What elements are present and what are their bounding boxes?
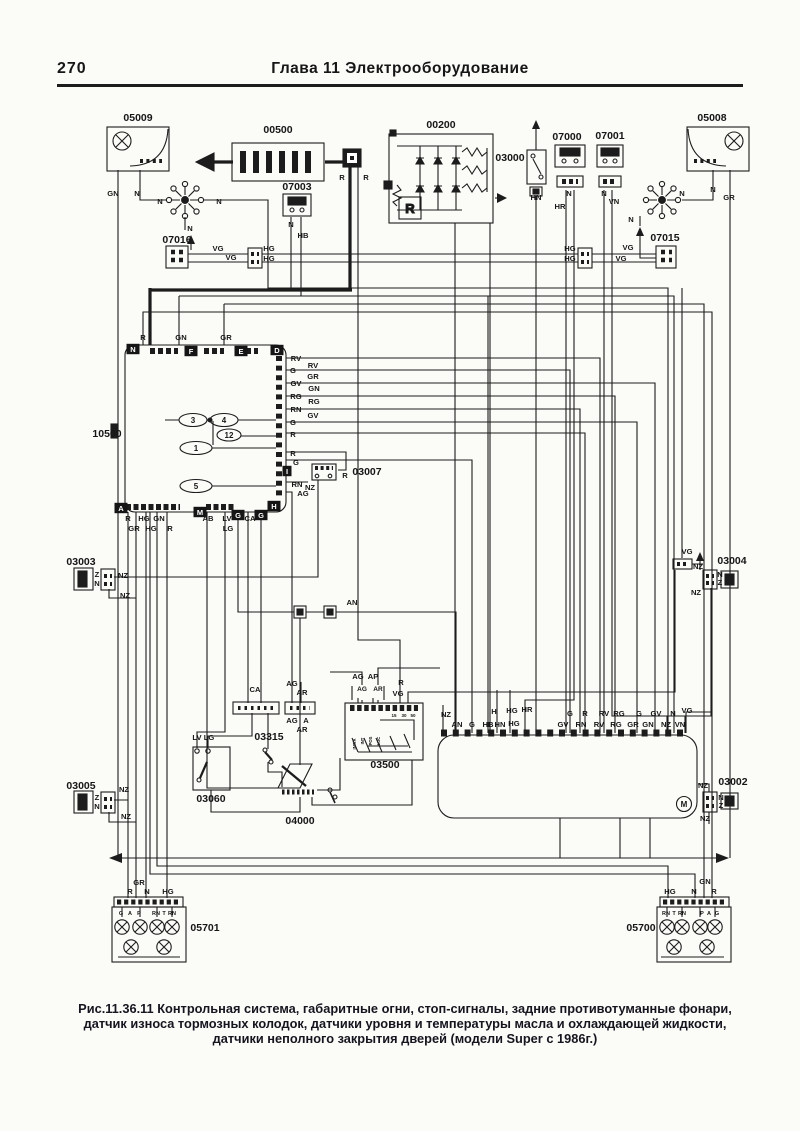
manual-page: 270 Глава 11 Электрооборудование [0, 0, 800, 1131]
wire-label: AG [286, 716, 297, 725]
fuse-box-00500 [232, 143, 324, 181]
switch-04000 [278, 764, 337, 803]
wire-label: N [670, 709, 675, 718]
wire-label: VG [226, 253, 237, 262]
wire-label: NZ [121, 812, 131, 821]
wire-label: LG [223, 524, 234, 533]
component-label: 07015 [650, 232, 679, 244]
wire-label: GR [307, 372, 319, 381]
connector-07003 [283, 194, 311, 216]
wire-label: NZ [661, 720, 671, 729]
wire-label: HG [162, 887, 173, 896]
wire-label: GV [651, 709, 663, 718]
relay-03007 [312, 464, 336, 480]
wire-label: GN [308, 384, 319, 393]
wire-label: NZ [700, 814, 710, 823]
wire-label: N [710, 185, 715, 194]
wire-label: N [628, 215, 633, 224]
switch-03060 [193, 747, 230, 790]
wire-label: 30 [401, 713, 407, 718]
feed-arrow-left [196, 153, 214, 171]
wire-label: RG [290, 392, 301, 401]
wire-label: GN [153, 514, 164, 523]
junction-node [343, 149, 361, 167]
component-label: 10500 [92, 428, 121, 440]
wire-label: GN [107, 189, 118, 198]
wire-label: NZ [693, 562, 703, 571]
wire-label: N [157, 197, 162, 206]
wire-label: HG [564, 254, 575, 263]
wire-label: R [290, 430, 296, 439]
wire-label: R [342, 471, 348, 480]
wire-label: GN [175, 333, 186, 342]
wire-label: R [167, 524, 173, 533]
component-label: 07001 [595, 130, 624, 142]
wire-label: AR [373, 686, 383, 693]
component-symbols [74, 127, 749, 962]
wire-label: N [134, 189, 139, 198]
switch-position-label: INT [360, 737, 365, 744]
wire-label: AN [452, 720, 463, 729]
wire-label: Z [95, 570, 100, 579]
gauge-number: 5 [194, 482, 199, 491]
switch-03500 [345, 703, 423, 760]
wire-label: HG [664, 887, 675, 896]
wire-label: GV [308, 411, 320, 420]
switch-position-label: LUC [376, 737, 381, 746]
wire-label: RG [613, 709, 624, 718]
wire-label: RN [292, 480, 303, 489]
wire-label: VG [393, 689, 404, 698]
wire-label: GN [642, 720, 653, 729]
wire-label: GR [128, 524, 140, 533]
wire-label: 15 [391, 713, 397, 718]
wire-label: HR [555, 202, 566, 211]
component-label: 05009 [123, 112, 152, 124]
wire-label: GV [558, 720, 570, 729]
switch-position-label: POS [368, 736, 373, 745]
wire-label: A [707, 911, 711, 917]
wire-label: HG [145, 524, 156, 533]
badge-letter: N [130, 345, 135, 354]
wire-label: LV [222, 514, 232, 523]
badge-letter: F [189, 347, 194, 356]
badge-letter: D [274, 346, 280, 355]
component-label: 03004 [717, 555, 746, 567]
wire-label: R [582, 709, 588, 718]
badge-letter: E [238, 347, 243, 356]
caption-line-2: датчик износа тормозных колодок, датчики… [55, 1017, 755, 1032]
wire-label: R [711, 887, 717, 896]
caption-line-1: Рис.11.36.11 Контрольная система, габари… [55, 1002, 755, 1017]
wire-label: RN [576, 720, 587, 729]
component-label: 03002 [718, 776, 747, 788]
wire-label: G [293, 458, 299, 467]
alternator-regulator-label: R [405, 201, 415, 216]
component-label: 07000 [552, 131, 581, 143]
wire-label: GR [627, 720, 639, 729]
wire-label: VG [623, 243, 634, 252]
wire-label: G [290, 366, 296, 375]
wire-label: NZ [119, 785, 129, 794]
wire-label: R [140, 333, 146, 342]
connector-07000 [555, 145, 585, 187]
wire-label: R [127, 887, 133, 896]
lamp-cluster-05701 [112, 897, 186, 962]
labels-layer: GNNNNNRRNHBHNNHRNVNNGRNNVGVGHGHGHGHGVGVG… [66, 112, 747, 934]
component-label: 07003 [282, 181, 311, 193]
lamp-unit-05009 [107, 127, 169, 171]
wire-label: RN [291, 405, 302, 414]
wire-label: NZ [698, 781, 708, 790]
wire-label: GR [220, 333, 232, 342]
wire-label: NZ [691, 588, 701, 597]
wire-label: 50 [410, 713, 416, 718]
wire-label: RV [594, 720, 605, 729]
wire-label: R [363, 173, 369, 182]
component-label: 03007 [352, 466, 381, 478]
wire-label: N [216, 197, 221, 206]
wire-label: HB [298, 231, 309, 240]
gauge-number: 12 [225, 431, 234, 440]
wire-label: HG [263, 244, 274, 253]
ground-star-right [643, 181, 680, 218]
wire-label: VN [609, 197, 620, 206]
wire-label: HG [138, 514, 149, 523]
component-label: 03000 [495, 152, 524, 164]
wire-label: RV [291, 354, 302, 363]
wire-label: RN [168, 911, 176, 917]
component-label: 03315 [254, 731, 283, 743]
badge-letter: G [258, 511, 264, 520]
wire-label: T [162, 911, 166, 917]
wire-label: NZ [305, 483, 315, 492]
inline-connector-left [248, 248, 262, 268]
wire-label: R [290, 449, 296, 458]
component-label: 04000 [285, 815, 314, 827]
wire-label: HG [508, 719, 519, 728]
wire-label: VN [675, 720, 686, 729]
wire-label: P [700, 911, 704, 917]
wire-label: N [288, 220, 293, 229]
badge-letter: H [271, 502, 276, 511]
wire-label: NZ [441, 710, 451, 719]
wire-label: AR [297, 688, 308, 697]
component-label: 05700 [626, 922, 655, 934]
component-label: 03500 [370, 759, 399, 771]
wire-label: G [567, 709, 573, 718]
wire-label: N [94, 579, 99, 588]
wire-label: LV [192, 733, 202, 742]
wire-label: Z [719, 801, 724, 810]
connector-07016 [166, 246, 188, 268]
wire-label: AG [286, 679, 297, 688]
wire-label: A [128, 911, 132, 917]
wire-label: HB [483, 720, 494, 729]
wire-label: HG [564, 244, 575, 253]
wire-label: N [144, 887, 149, 896]
badge-letter: I [286, 467, 288, 476]
wire-label: Z [718, 578, 723, 587]
connector-07001 [597, 145, 623, 187]
wire-label: HN [495, 720, 506, 729]
wire-label: T [672, 911, 676, 917]
wire-label: N [94, 802, 99, 811]
connector-07015 [656, 246, 676, 268]
instrument-cluster-10500 [111, 345, 286, 512]
wire-label: AP [368, 672, 379, 681]
wire-label: N [566, 189, 571, 198]
wire-label: RG [610, 720, 621, 729]
badge-letter: G [235, 511, 241, 520]
badge-letter: A [118, 504, 124, 513]
wire-label: R [398, 678, 404, 687]
wiring-diagram: R GNNNNNRRNHBHNNHRNVNNGRNNVGVGHGHGHGHGVG… [0, 0, 800, 1131]
component-label: 05701 [190, 922, 219, 934]
wire-label: RN [678, 911, 686, 917]
wire-label: M [681, 800, 688, 809]
wire-label: GV [291, 379, 303, 388]
wire-label: RG [308, 397, 319, 406]
wire-label: CA [250, 685, 261, 694]
gauge-number: 1 [194, 444, 199, 453]
switch-03000 [527, 150, 546, 196]
wire-label: G [119, 911, 123, 917]
component-label: 00200 [426, 119, 455, 131]
component-label: 00500 [263, 124, 292, 136]
component-label: 03005 [66, 780, 95, 792]
figure-caption: Рис.11.36.11 Контрольная система, габари… [55, 1002, 755, 1047]
wire-label: HG [506, 706, 517, 715]
wire-label: RN [662, 911, 670, 917]
switch-position-label: INT/A [352, 739, 357, 750]
wire-label: AG [357, 686, 367, 693]
badge-letter: M [197, 508, 203, 517]
wire-label: AG [352, 672, 363, 681]
switch-03315 [263, 748, 273, 764]
wire-label: HN [531, 193, 542, 202]
wire-label: VG [616, 254, 627, 263]
wire-label: AR [297, 725, 308, 734]
wire-label: CA [245, 514, 256, 523]
wire-label: GR [723, 193, 735, 202]
wire-label: G [469, 720, 475, 729]
wire-label: LG [204, 733, 215, 742]
wire-label: GN [699, 877, 710, 886]
gauge-number: 4 [222, 416, 227, 425]
component-label: 03003 [66, 556, 95, 568]
wire-label: VG [682, 706, 693, 715]
wire-label: Z [95, 793, 100, 802]
wire-label: G [715, 911, 719, 917]
wire-label: G [290, 418, 296, 427]
wire-label: GR [133, 878, 145, 887]
wires [109, 128, 730, 957]
inline-connector-right [578, 248, 592, 268]
wire-label: H [491, 707, 496, 716]
wire-label: P [137, 911, 141, 917]
ca-connector [233, 702, 279, 714]
component-label: 03060 [196, 793, 225, 805]
wire-label: RN [152, 911, 160, 917]
wire-label: RV [599, 709, 610, 718]
wire-label: NZ [120, 591, 130, 600]
ground-star-left [166, 181, 203, 218]
lamp-unit-05008 [687, 127, 749, 171]
wire-label: VG [682, 547, 693, 556]
caption-line-3: датчики неполного закрытия дверей (модел… [55, 1032, 755, 1047]
wire-label: N [691, 887, 696, 896]
wire-label: N [601, 189, 606, 198]
wire-label: R [339, 173, 345, 182]
wire-label: N [187, 224, 192, 233]
wire-label: RV [308, 361, 319, 370]
wire-label: N [679, 189, 684, 198]
wire-label: AN [347, 598, 358, 607]
wire-label: HG [263, 254, 274, 263]
wire-label: VG [213, 244, 224, 253]
wire-label: HR [522, 705, 533, 714]
alternator-00200 [384, 130, 493, 223]
rear-harness-block [438, 733, 697, 818]
lamp-cluster-05700 [657, 897, 731, 962]
component-label: 07016 [162, 234, 191, 246]
wire-label: G [636, 709, 642, 718]
wire-label: NZ [118, 571, 128, 580]
component-label: 05008 [697, 112, 726, 124]
gauge-number: 3 [191, 416, 196, 425]
wire-label: A [303, 716, 309, 725]
wire-label: R [125, 514, 131, 523]
